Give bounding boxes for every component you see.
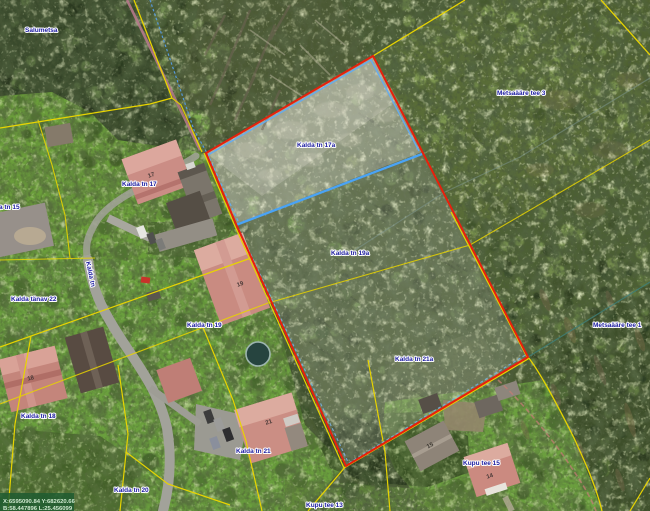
svg-text:Kalda tn 19: Kalda tn 19 — [187, 322, 222, 329]
svg-text:Metsaääre tee 1: Metsaääre tee 1 — [593, 322, 642, 329]
svg-text:Manna tn 15: Manna tn 15 — [0, 204, 20, 211]
svg-text:Metsaääre tee 3: Metsaääre tee 3 — [497, 90, 546, 97]
svg-text:Kalda tn 21a: Kalda tn 21a — [395, 356, 434, 363]
svg-text:Kupu tee 15: Kupu tee 15 — [463, 460, 500, 467]
svg-text:Kupu tee 13: Kupu tee 13 — [306, 502, 343, 509]
svg-text:B:58.447896 L:25.456099: B:58.447896 L:25.456099 — [3, 506, 73, 511]
svg-text:Kalda tn 19a: Kalda tn 19a — [331, 250, 370, 257]
svg-text:X:6595090.84 Y:682620.66: X:6595090.84 Y:682620.66 — [3, 499, 76, 505]
svg-text:Kalda tn 17a: Kalda tn 17a — [297, 142, 336, 149]
svg-text:Kalda tänav 22: Kalda tänav 22 — [11, 296, 57, 303]
svg-text:Kalda tn 17: Kalda tn 17 — [122, 181, 157, 188]
svg-text:Kalda tn 21: Kalda tn 21 — [236, 448, 271, 455]
svg-text:Kalda tn 20: Kalda tn 20 — [114, 487, 149, 494]
svg-text:Kalda tn 18: Kalda tn 18 — [21, 413, 56, 420]
svg-text:Salumetsa: Salumetsa — [25, 27, 58, 34]
